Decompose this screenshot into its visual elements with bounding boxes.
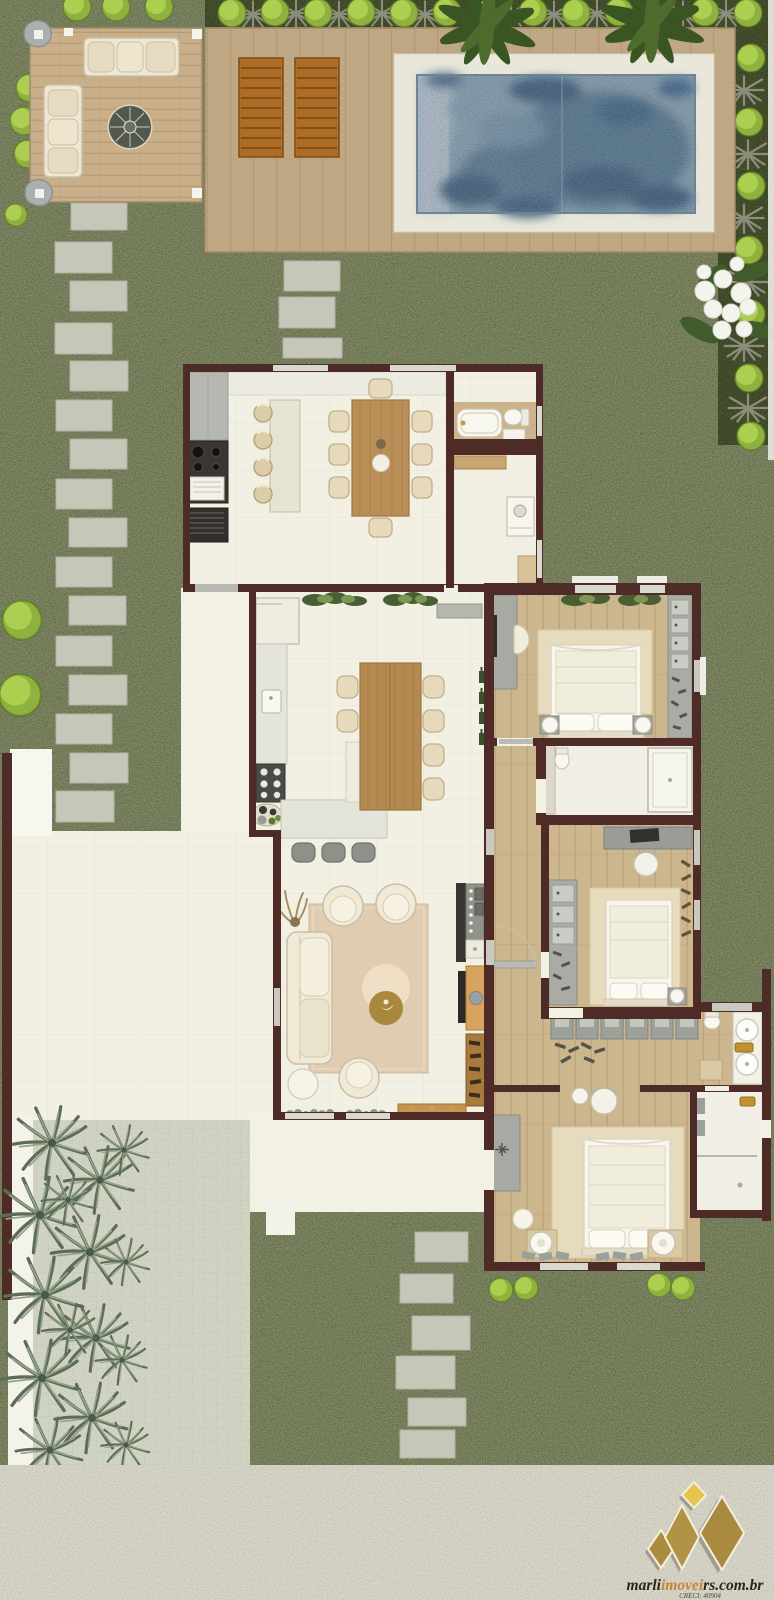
svg-text:CRECI: 40904: CRECI: 40904 xyxy=(679,1592,721,1600)
